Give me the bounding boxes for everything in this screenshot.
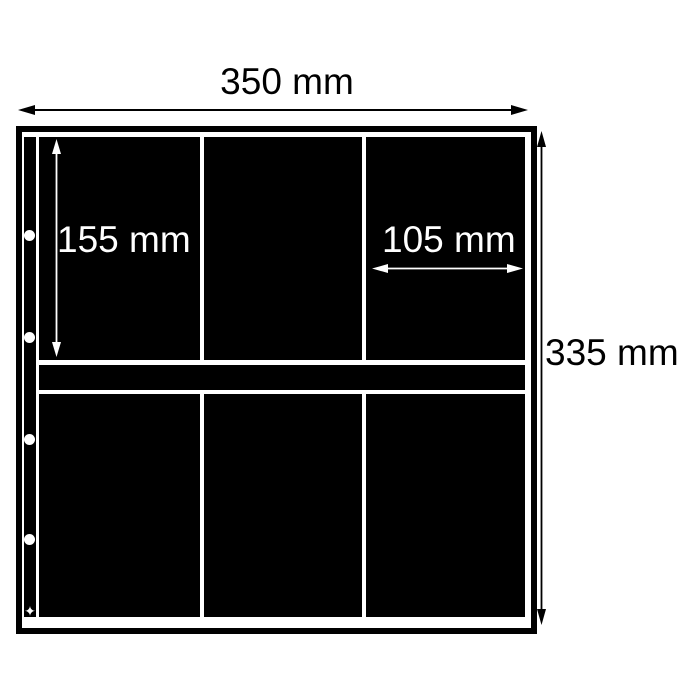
pocket-height-label: 155 mm (57, 221, 191, 258)
binder-hole-icon (24, 534, 35, 545)
pocket-grid (39, 137, 525, 617)
pocket-width-dimension-arrow-icon (372, 262, 523, 275)
pocket-row1-col2 (204, 137, 362, 360)
sheet-height-dimension-arrow-icon (535, 131, 548, 625)
binding-strip (24, 137, 36, 617)
pocket-width-label: 105 mm (382, 221, 516, 258)
album-page-diagram: 350 mm ✦ 155 mm 105 m (0, 0, 700, 700)
sheet-width-dimension-arrow-icon (18, 103, 528, 117)
binder-hole-icon (24, 332, 35, 343)
punch-mark-icon: ✦ (23, 604, 37, 620)
middle-divider-strip (39, 365, 525, 390)
pocket-row2-col3 (366, 394, 525, 617)
pocket-row2-col2 (204, 394, 362, 617)
album-sheet: ✦ (16, 126, 537, 634)
binder-hole-icon (24, 230, 35, 241)
pocket-row2-col1 (39, 394, 200, 617)
binder-hole-icon (24, 434, 35, 445)
sheet-width-label: 350 mm (157, 63, 417, 100)
sheet-height-label: 335 mm (545, 334, 679, 371)
